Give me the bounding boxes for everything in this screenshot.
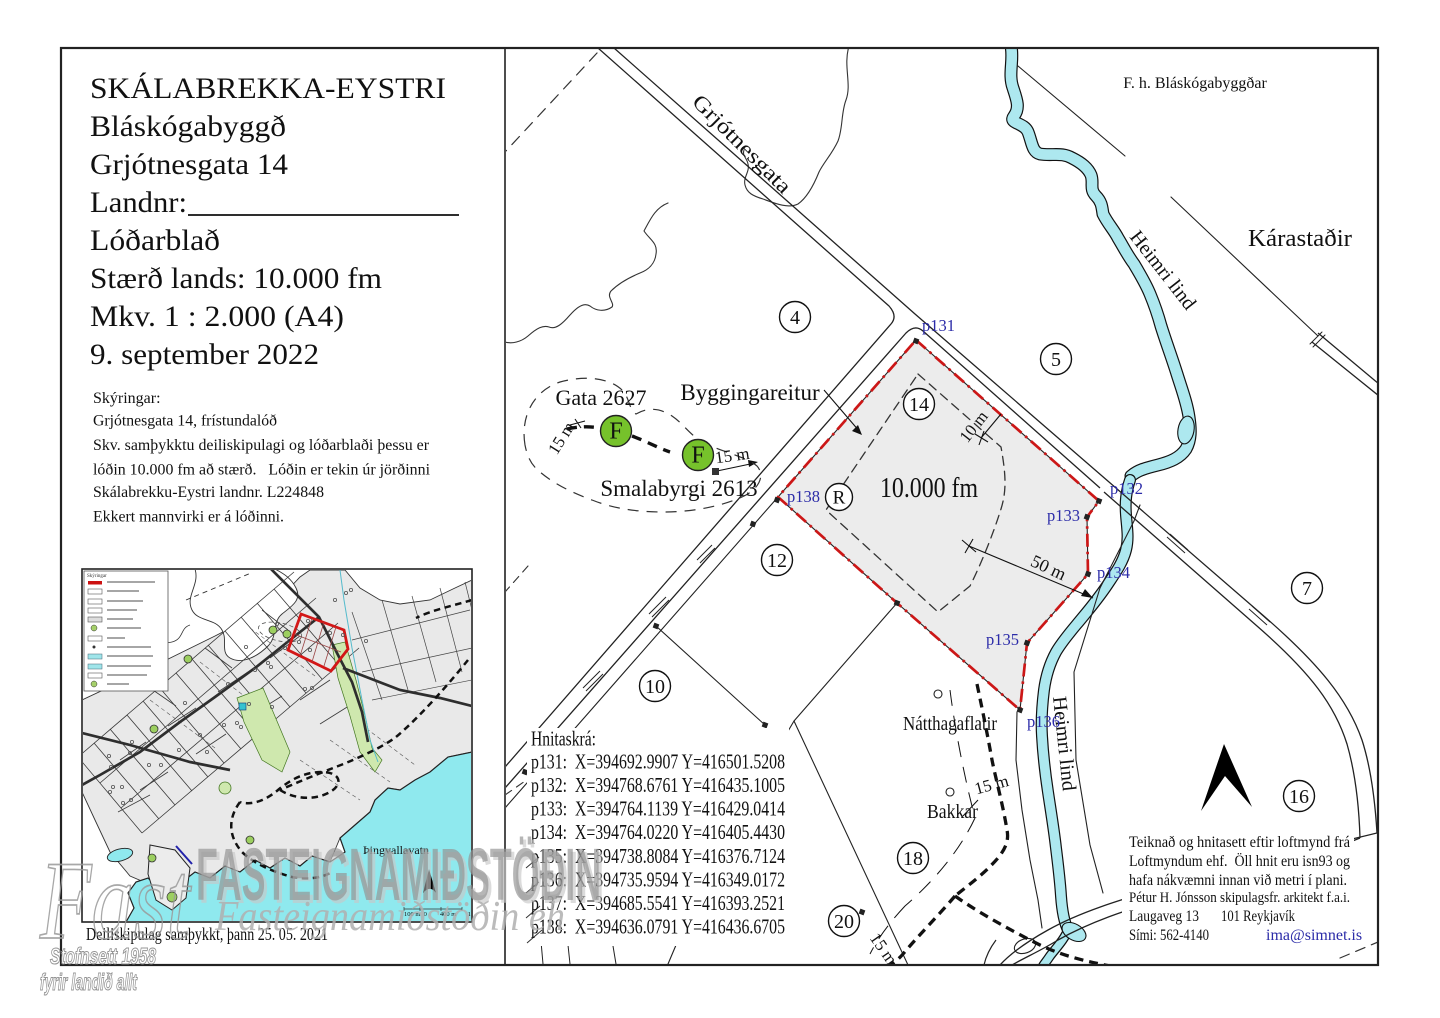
svg-text:p136: p136 (1027, 712, 1060, 731)
svg-text:p132: p132 (1110, 479, 1143, 498)
svg-text:F: F (691, 443, 704, 469)
svg-text:4: 4 (790, 307, 800, 329)
svg-text:12: 12 (767, 550, 787, 572)
svg-text:p138: p138 (787, 487, 820, 506)
svg-text:Pétur H. Jónsson skipulagsfr.: Pétur H. Jónsson skipulagsfr. arkitekt f… (1129, 890, 1350, 906)
svg-text:p132: X=394768.6761 Y=416435.: p132: X=394768.6761 Y=416435.1005 (531, 773, 785, 797)
svg-text:Bakkar: Bakkar (927, 801, 978, 823)
svg-text:Loftmyndum ehf. Öll hnit eru: Loftmyndum ehf. Öll hnit eru isn93 og (1129, 852, 1350, 870)
svg-text:SKÁLABREKKA-EYSTRI: SKÁLABREKKA-EYSTRI (90, 72, 446, 105)
svg-text:ima@simnet.is: ima@simnet.is (1266, 927, 1362, 944)
svg-text:F: F (609, 419, 622, 445)
svg-text:p135: p135 (986, 630, 1019, 649)
svg-text:Laugaveg 13: Laugaveg 13 (1129, 908, 1199, 925)
svg-text:Stærð lands: 10.000 fm: Stærð lands: 10.000 fm (90, 262, 382, 295)
svg-text:p133: p133 (1047, 506, 1080, 525)
svg-text:Sími: 562-4140: Sími: 562-4140 (1129, 927, 1209, 944)
svg-text:Smalabyrgi 2613: Smalabyrgi 2613 (600, 476, 757, 501)
svg-text:Bláskógabyggð: Bláskógabyggð (90, 110, 286, 143)
svg-text:Grjótnesgata 14: Grjótnesgata 14 (90, 148, 288, 181)
svg-text:20: 20 (834, 911, 854, 933)
svg-text:101 Reykjavík: 101 Reykjavík (1221, 908, 1295, 925)
svg-text:16: 16 (1289, 786, 1309, 808)
svg-text:Skýringar:: Skýringar: (93, 390, 161, 407)
svg-text:Byggingareitur: Byggingareitur (680, 380, 820, 405)
svg-text:p133: X=394764.1139 Y=416429.: p133: X=394764.1139 Y=416429.0414 (531, 797, 785, 821)
svg-text:10.000 fm: 10.000 fm (880, 473, 978, 504)
svg-text:Fasteignamiðstöðin eh: Fasteignamiðstöðin eh (214, 894, 565, 940)
svg-text:Nátthagaflatir: Nátthagaflatir (903, 713, 997, 735)
svg-text:Skýringar: Skýringar (87, 574, 107, 579)
svg-text:7: 7 (1302, 578, 1312, 600)
svg-text:R: R (833, 487, 846, 508)
svg-text:Ekkert mannvirki er á lóðinni.: Ekkert mannvirki er á lóðinni. (93, 509, 284, 526)
svg-text:14: 14 (909, 394, 929, 416)
svg-text:hafa nákvæmni innan við metri: hafa nákvæmni innan við metri í plani. (1129, 872, 1347, 889)
svg-text:Skv. samþykktu deiliskipulagi: Skv. samþykktu deiliskipulagi og lóðarbl… (93, 437, 430, 454)
svg-text:9. september 2022: 9. september 2022 (90, 338, 319, 371)
svg-text:Hnitaskrá:: Hnitaskrá: (531, 727, 596, 751)
svg-text:Lóðarblað: Lóðarblað (90, 224, 220, 257)
svg-text:Gata 2627: Gata 2627 (555, 385, 646, 410)
svg-text:Mkv. 1 : 2.000 (A4): Mkv. 1 : 2.000 (A4) (90, 300, 344, 333)
svg-text:p131: X=394692.9907 Y=416501.: p131: X=394692.9907 Y=416501.5208 (531, 749, 785, 773)
svg-text:18: 18 (903, 848, 923, 870)
svg-text:Landnr:: Landnr: (90, 186, 187, 219)
svg-text:fyrir landið allt: fyrir landið allt (40, 969, 138, 995)
svg-text:Teiknað og hnitasett eftir lof: Teiknað og hnitasett eftir loftmynd frá (1129, 834, 1350, 851)
svg-text:lóðin 10.000 fm að stærð. Ló: lóðin 10.000 fm að stærð. Lóðin er tekin… (93, 462, 431, 479)
svg-text:Kárastaðir: Kárastaðir (1248, 226, 1352, 252)
svg-text:F. h. Bláskógabyggðar: F. h. Bláskógabyggðar (1123, 75, 1267, 92)
svg-text:5: 5 (1051, 349, 1061, 371)
svg-text:Stofnsett 1958: Stofnsett 1958 (50, 943, 156, 969)
svg-text:p134: p134 (1097, 563, 1130, 582)
svg-text:p131: p131 (922, 316, 955, 335)
svg-text:Skálabrekku-Eystri landnr. L22: Skálabrekku-Eystri landnr. L224848 (93, 484, 324, 501)
svg-text:10: 10 (645, 676, 665, 698)
svg-text:Grjótnesgata 14, frístundalóð: Grjótnesgata 14, frístundalóð (93, 413, 277, 430)
